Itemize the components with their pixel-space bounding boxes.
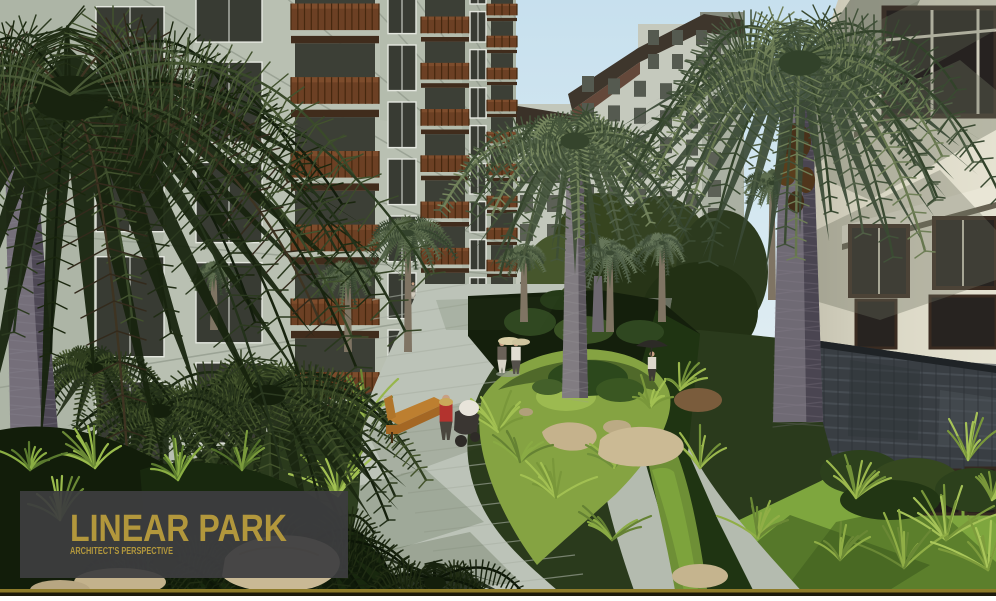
svg-text:ARCHITECT'S PERSPECTIVE: ARCHITECT'S PERSPECTIVE	[70, 545, 173, 557]
svg-text:LINEAR PARK: LINEAR PARK	[70, 508, 287, 550]
